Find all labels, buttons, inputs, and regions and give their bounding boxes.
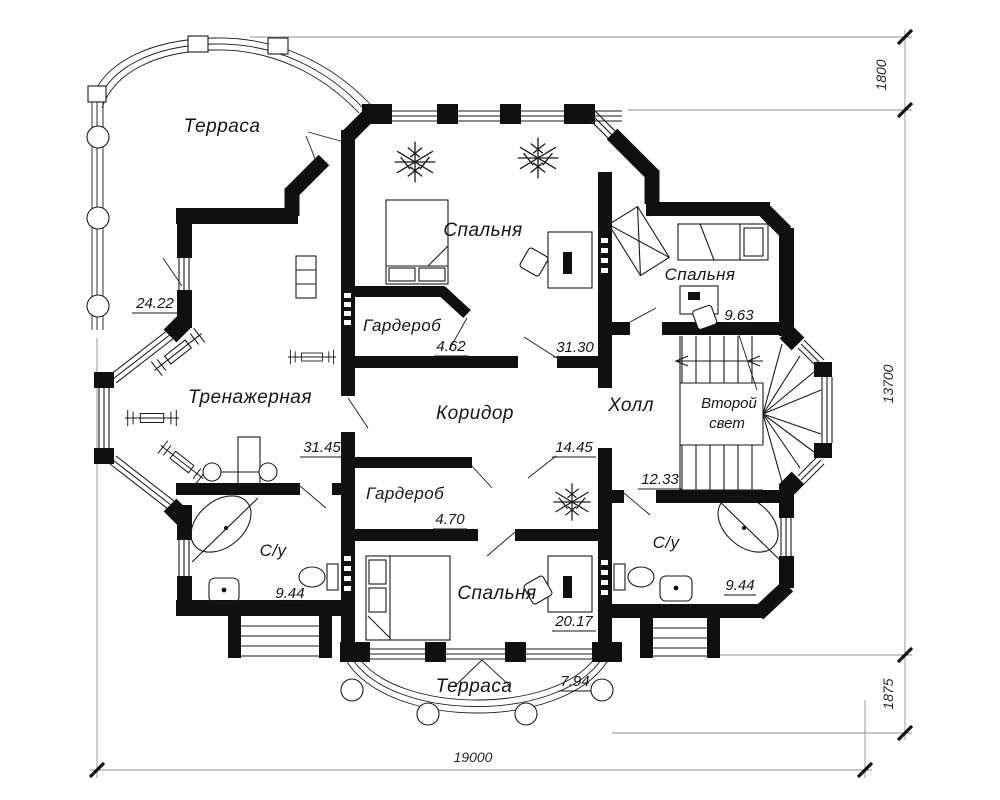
- area-wardrobe-top: 4.62: [436, 338, 466, 355]
- dim-overall-height: 13700: [880, 364, 896, 403]
- toilet-right-icon: [614, 564, 654, 590]
- wardrobe-cabinet-icon: [609, 207, 670, 276]
- area-wardrobe-bottom: 4.70: [435, 511, 465, 528]
- floor-plan-drawing: 19000 1800 13700 1875: [0, 0, 1000, 800]
- porch-steps-right: [640, 618, 720, 658]
- label-terrace-top: Терраса: [184, 116, 261, 137]
- area-terrace-top: 24.22: [135, 295, 174, 312]
- area-corridor: 14.45: [555, 439, 593, 456]
- label-gym: Тренажерная: [188, 387, 312, 408]
- label-wardrobe-bottom: Гардероб: [366, 484, 445, 503]
- label-void-line1: Второй: [701, 395, 757, 412]
- dim-offset-bottom: 1875: [880, 678, 896, 709]
- dim-overall-width: 19000: [454, 749, 493, 765]
- area-bedroom-right: 9.63: [724, 307, 754, 324]
- area-bedroom-bottom: 20.17: [554, 613, 593, 630]
- sink-left-icon: [209, 578, 239, 603]
- toilet-left-icon: [299, 564, 338, 590]
- area-hall: 12.33: [641, 471, 679, 488]
- terrace-top-colonnade: [87, 36, 370, 330]
- bathtub-left-icon: [180, 485, 262, 564]
- desk-top-icon: [519, 232, 592, 288]
- area-gym: 31.45: [303, 439, 341, 456]
- label-wardrobe-top: Гардероб: [363, 316, 442, 335]
- sink-right-icon: [660, 576, 692, 601]
- porch-steps-left: [228, 616, 332, 658]
- label-bath-right: С/у: [653, 533, 681, 552]
- label-bedroom-bottom: Спальня: [457, 583, 536, 604]
- bed-bottom-icon: [366, 556, 450, 640]
- area-bedroom-top: 31.30: [556, 339, 594, 356]
- area-terrace-bottom: 7.94: [560, 673, 589, 690]
- bed-right-icon: [678, 224, 768, 260]
- area-bath-right: 9.44: [725, 577, 754, 594]
- label-bedroom-right: Спальня: [665, 265, 736, 284]
- label-bath-left: С/у: [260, 541, 288, 560]
- label-hall: Холл: [607, 395, 654, 416]
- label-void-line2: свет: [709, 415, 745, 432]
- dim-offset-top: 1800: [873, 59, 889, 90]
- bed-top-icon: [386, 200, 448, 284]
- label-bedroom-top: Спальня: [443, 220, 522, 241]
- label-terrace-bottom: Терраса: [436, 676, 513, 697]
- area-bath-left: 9.44: [275, 585, 304, 602]
- label-corridor: Коридор: [436, 403, 514, 424]
